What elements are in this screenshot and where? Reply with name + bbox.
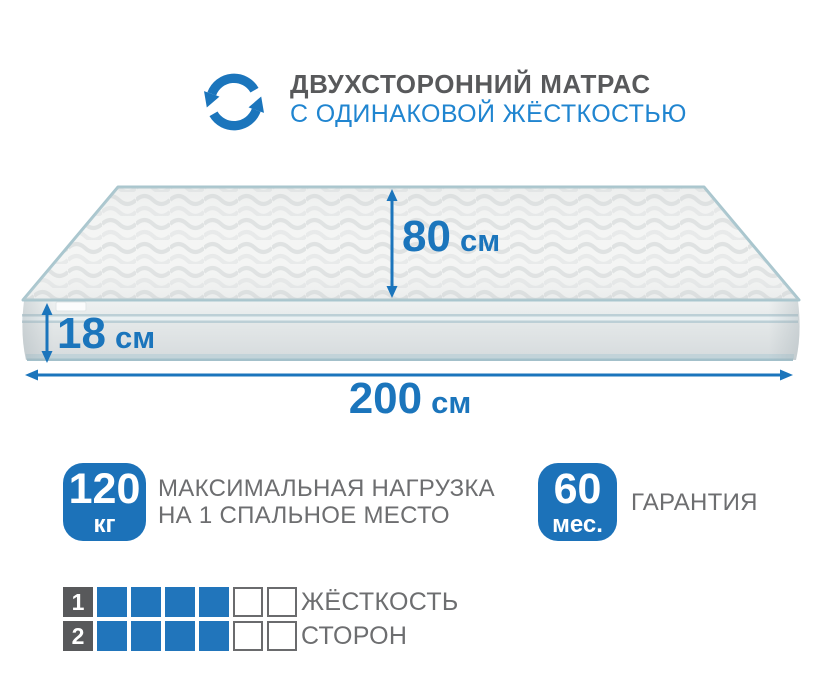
firmness-empty-square <box>233 587 263 617</box>
max-load-badge: 120 кг <box>63 463 146 541</box>
max-load-line2: НА 1 СПАЛЬНОЕ МЕСТО <box>158 502 495 529</box>
firmness-row: 1 <box>63 587 297 617</box>
firmness-row-number: 1 <box>63 587 93 617</box>
dimension-unit: см <box>115 322 155 353</box>
firmness-filled-square <box>131 621 161 651</box>
warranty-value: 60 <box>554 468 602 511</box>
infographic-canvas: ДВУХСТОРОННИЙ МАТРАС С ОДИНАКОВОЙ ЖЁСТКО… <box>0 0 816 700</box>
firmness-filled-square <box>131 587 161 617</box>
dimension-value: 200 <box>349 377 422 421</box>
firmness-label-line1: ЖЁСТКОСТЬ <box>301 585 459 619</box>
firmness-labels: ЖЁСТКОСТЬ СТОРОН <box>301 585 459 653</box>
warranty-badge: 60 мес. <box>538 463 617 541</box>
dimension-value: 18 <box>57 312 106 356</box>
dimension-label-side-height: 18 см <box>57 312 155 356</box>
dimension-value: 80 <box>402 215 451 259</box>
dimension-unit: см <box>460 225 500 256</box>
firmness-scale: 1 2 <box>63 587 297 651</box>
arrow-length-head-left <box>25 370 38 381</box>
max-load-value: 120 <box>69 468 141 511</box>
firmness-filled-square <box>165 587 195 617</box>
dimension-unit: см <box>431 387 471 418</box>
dimension-label-top-width: 80 см <box>402 215 500 259</box>
arrow-length-head-right <box>780 370 793 381</box>
firmness-filled-square <box>199 621 229 651</box>
max-load-description: МАКСИМАЛЬНАЯ НАГРУЗКА НА 1 СПАЛЬНОЕ МЕСТ… <box>158 475 495 529</box>
dimension-label-length: 200 см <box>320 377 500 421</box>
firmness-row: 2 <box>63 621 297 651</box>
firmness-filled-square <box>97 587 127 617</box>
warranty-unit: мес. <box>552 513 603 537</box>
firmness-empty-square <box>267 621 297 651</box>
firmness-filled-square <box>165 621 195 651</box>
firmness-empty-square <box>233 621 263 651</box>
warranty-label: ГАРАНТИЯ <box>631 489 758 516</box>
firmness-row-number: 2 <box>63 621 93 651</box>
firmness-filled-square <box>199 587 229 617</box>
firmness-label-line2: СТОРОН <box>301 619 459 653</box>
firmness-filled-square <box>97 621 127 651</box>
max-load-line1: МАКСИМАЛЬНАЯ НАГРУЗКА <box>158 475 495 502</box>
firmness-empty-square <box>267 587 297 617</box>
max-load-unit: кг <box>93 513 115 537</box>
